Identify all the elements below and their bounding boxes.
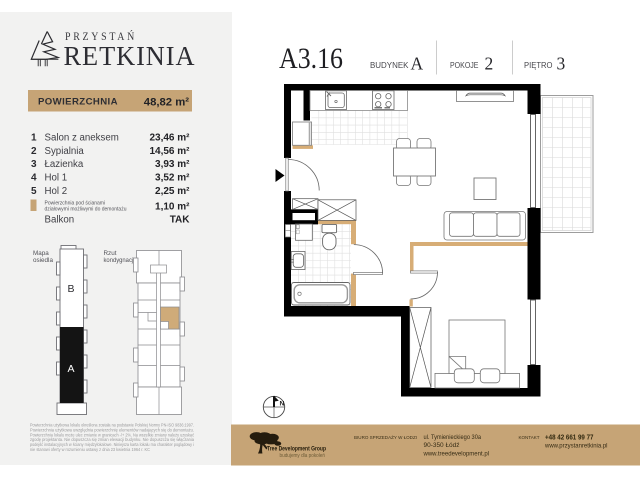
svg-text:TAK: TAK	[170, 214, 191, 225]
svg-text:Łazienka: Łazienka	[45, 159, 84, 170]
svg-text:Rzut: Rzut	[104, 250, 117, 257]
svg-text:Balkon: Balkon	[45, 214, 75, 225]
svg-text:Hol 1: Hol 1	[45, 173, 68, 184]
svg-text:B: B	[68, 283, 75, 295]
svg-text:3,52 m²: 3,52 m²	[155, 173, 190, 184]
svg-text:1,10 m²: 1,10 m²	[155, 201, 190, 212]
svg-text:3: 3	[31, 159, 37, 170]
svg-text:14,56 m²: 14,56 m²	[149, 146, 190, 157]
svg-text:POWIERZCHNIA: POWIERZCHNIA	[38, 97, 118, 108]
svg-text:1: 1	[31, 132, 37, 143]
svg-text:5: 5	[31, 186, 37, 197]
svg-text:A: A	[68, 363, 75, 375]
svg-text:Hol 2: Hol 2	[45, 186, 68, 197]
svg-text:Salon z aneksem: Salon z aneksem	[45, 132, 119, 143]
svg-text:N: N	[280, 401, 285, 408]
svg-text:A3.16: A3.16	[279, 42, 343, 75]
svg-text:BIURO SPRZEDAŻY W ŁODZI: BIURO SPRZEDAŻY W ŁODZI	[354, 434, 417, 441]
svg-text:3: 3	[557, 54, 566, 74]
svg-text:KONTAKT: KONTAKT	[519, 435, 540, 441]
svg-text:RETKINIA: RETKINIA	[64, 40, 196, 71]
svg-text:osiedla: osiedla	[33, 257, 53, 264]
svg-text:nie stanowi oferty w rozumieni: nie stanowi oferty w rozumieniu ustawy z…	[30, 447, 151, 452]
svg-text:48,82 m²: 48,82 m²	[144, 96, 189, 108]
svg-text:kondygnacji: kondygnacji	[104, 257, 135, 264]
svg-text:23,46 m²: 23,46 m²	[149, 132, 190, 143]
svg-text:PIĘTRO: PIĘTRO	[524, 61, 553, 70]
svg-text:2: 2	[31, 146, 37, 157]
svg-text:4: 4	[31, 173, 37, 184]
svg-text:A: A	[411, 54, 424, 74]
svg-text:POKOJE: POKOJE	[450, 61, 479, 70]
svg-text:budujemy dla pokoleń: budujemy dla pokoleń	[280, 453, 326, 459]
svg-text:Sypialnia: Sypialnia	[45, 146, 85, 157]
svg-text:Mapa: Mapa	[33, 250, 49, 257]
svg-text:90-350 Łódź: 90-350 Łódź	[424, 442, 460, 449]
svg-text:2: 2	[485, 54, 494, 74]
svg-text:działowymi możliwymi do demont: działowymi możliwymi do demontażu	[45, 206, 127, 212]
svg-text:BUDYNEK: BUDYNEK	[370, 61, 409, 70]
svg-text:+48 42 661 99 77: +48 42 661 99 77	[545, 432, 594, 441]
svg-text:ul. Tymienieckiego 30a: ul. Tymienieckiego 30a	[424, 434, 482, 441]
svg-text:www.przystanretkinia.pl: www.przystanretkinia.pl	[544, 443, 607, 450]
svg-text:Tree Development Group: Tree Development Group	[267, 446, 326, 453]
svg-text:3,93 m²: 3,93 m²	[155, 159, 190, 170]
svg-text:www.treedevelopment.pl: www.treedevelopment.pl	[423, 450, 489, 457]
svg-text:2,25 m²: 2,25 m²	[155, 186, 190, 197]
